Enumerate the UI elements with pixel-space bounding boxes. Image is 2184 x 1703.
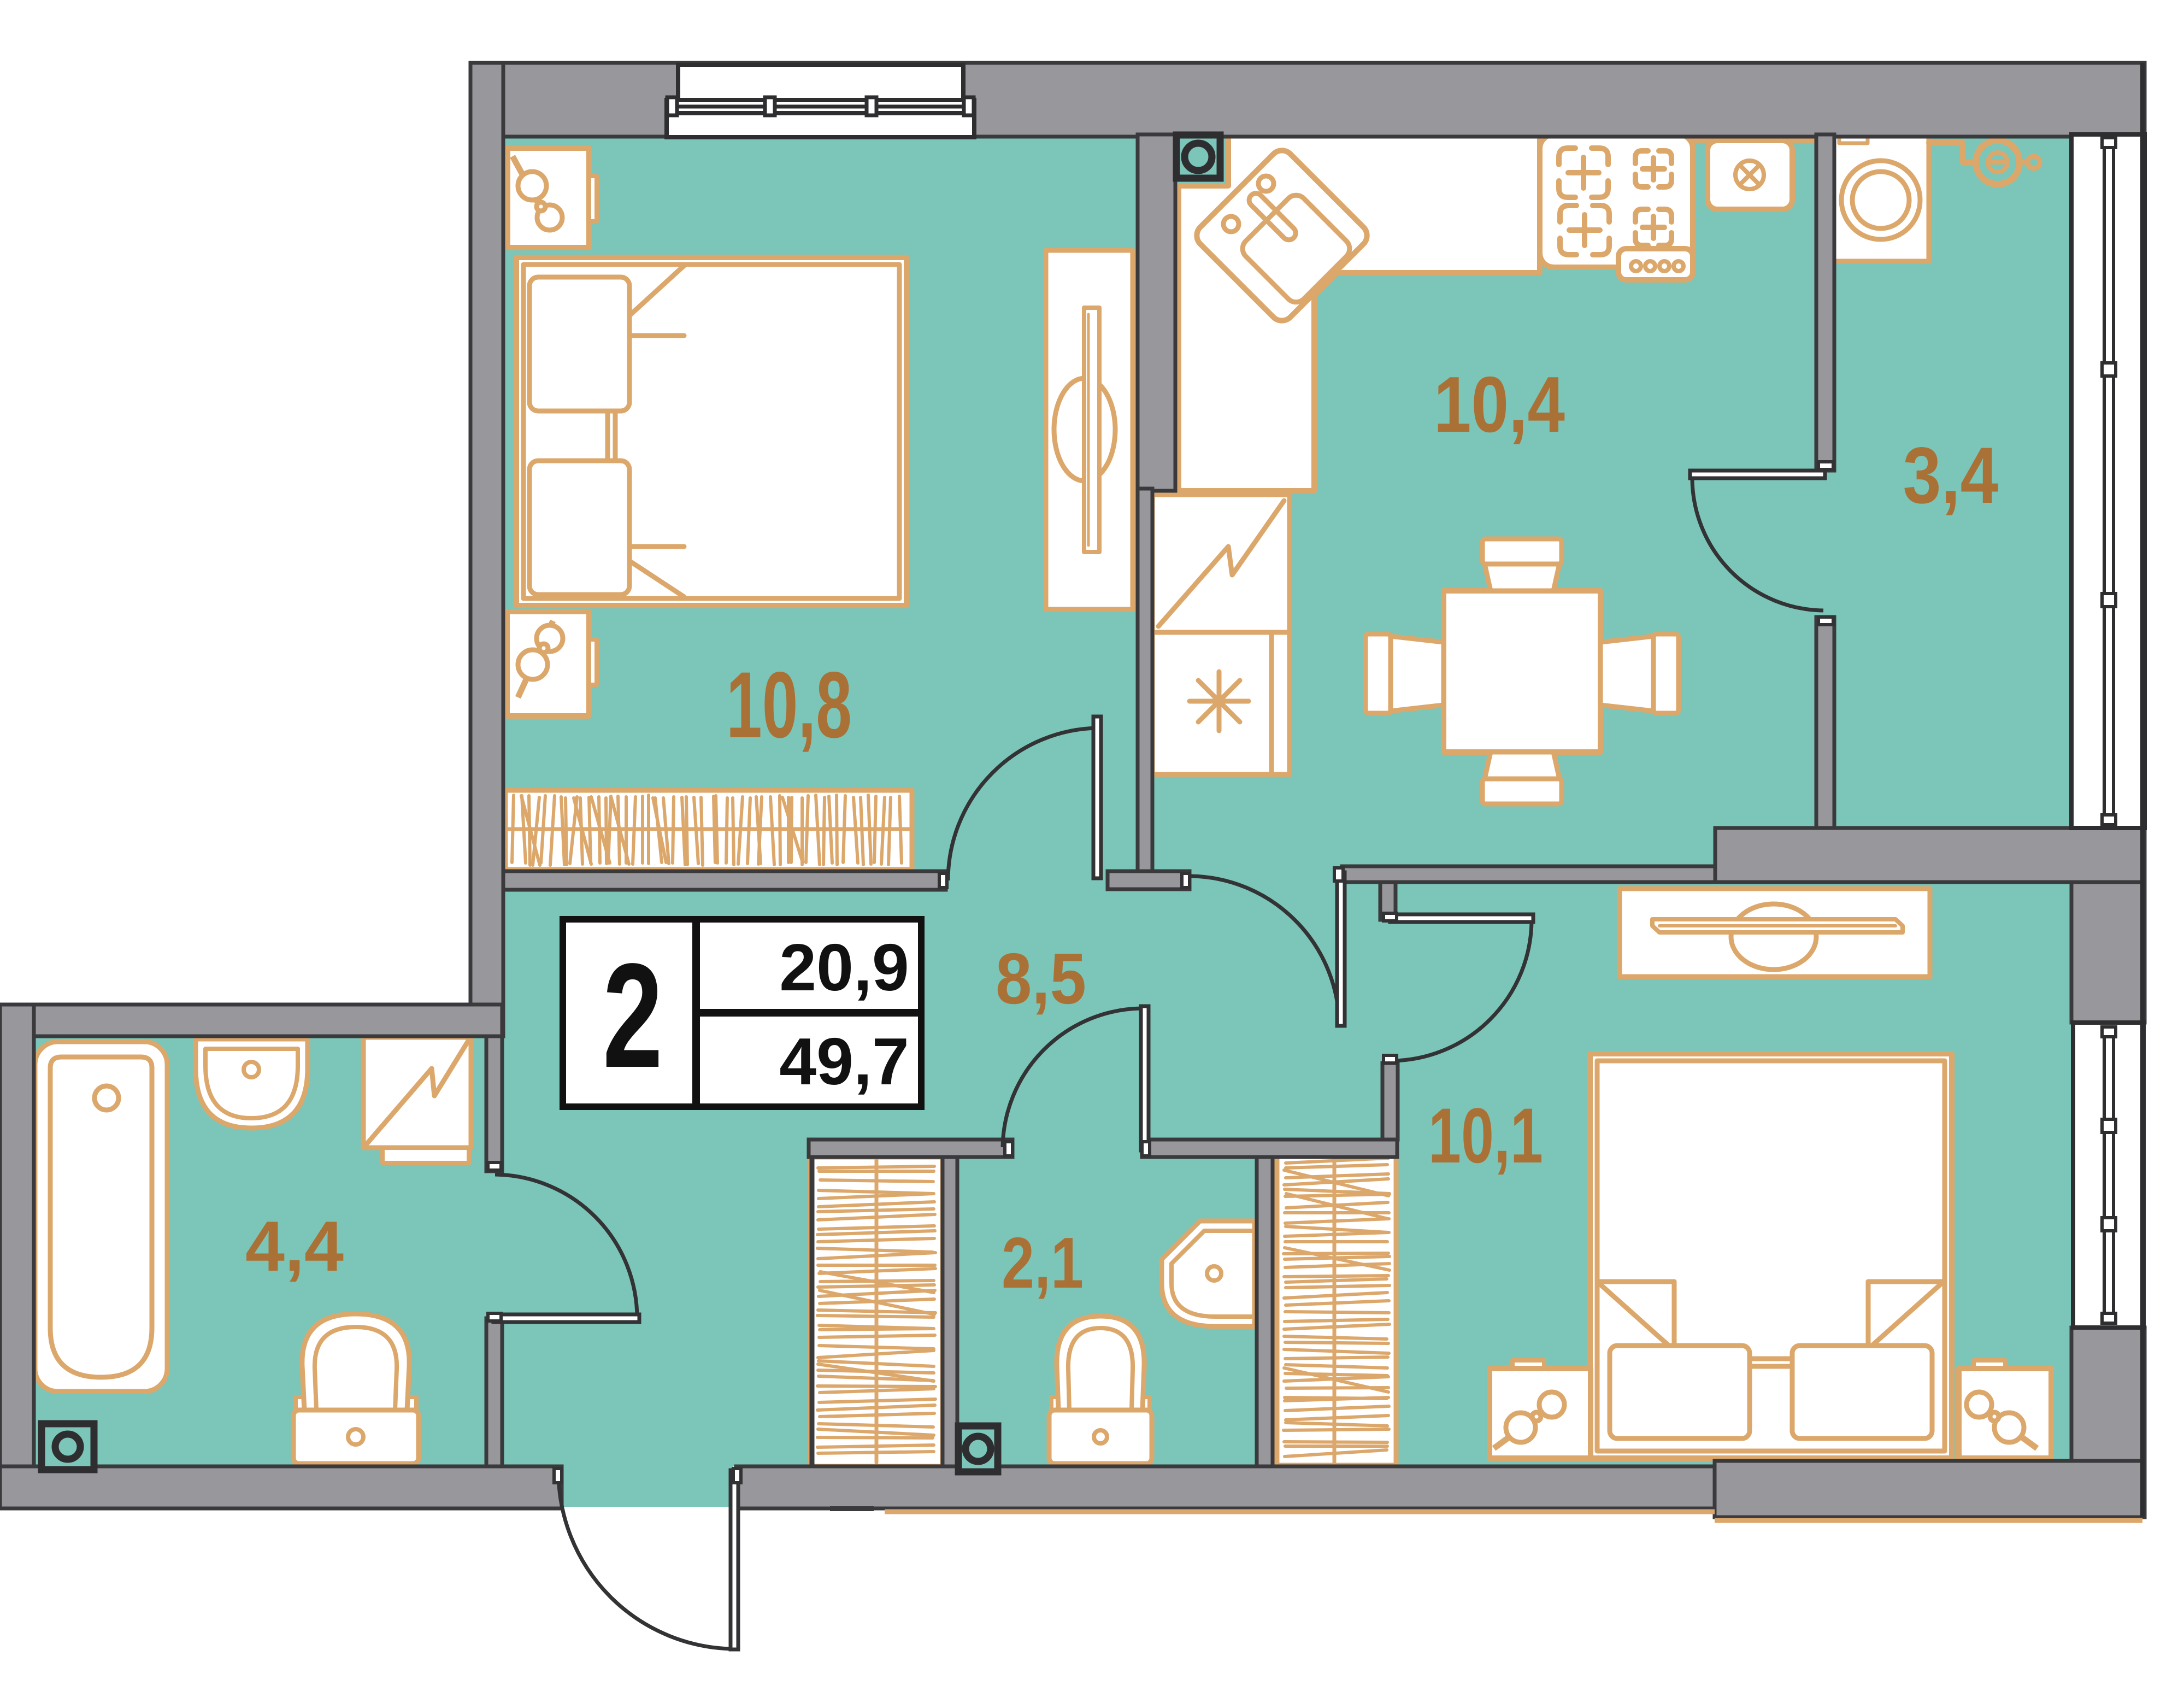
svg-text:20,9: 20,9 bbox=[779, 930, 909, 1005]
svg-text:8,5: 8,5 bbox=[996, 938, 1086, 1019]
svg-text:10,8: 10,8 bbox=[726, 653, 852, 757]
svg-text:3,4: 3,4 bbox=[1903, 431, 1999, 520]
svg-text:2,1: 2,1 bbox=[1002, 1223, 1084, 1303]
svg-text:10,1: 10,1 bbox=[1428, 1093, 1543, 1179]
svg-text:2: 2 bbox=[603, 932, 663, 1099]
svg-text:4,4: 4,4 bbox=[245, 1206, 344, 1286]
svg-text:10,4: 10,4 bbox=[1434, 360, 1565, 449]
svg-text:49,7: 49,7 bbox=[779, 1024, 909, 1099]
